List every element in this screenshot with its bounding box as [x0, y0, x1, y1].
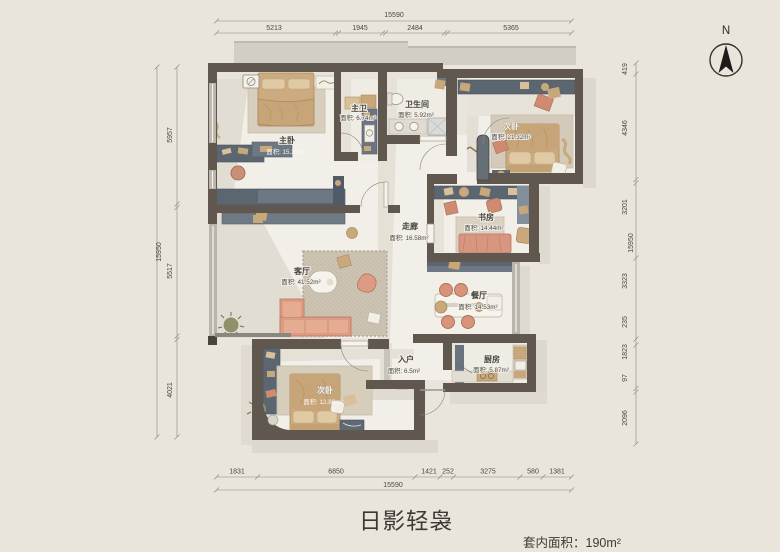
svg-text:15590: 15590	[384, 12, 404, 19]
svg-text:1945: 1945	[352, 25, 368, 32]
svg-text:面积: 16.58m²: 面积: 16.58m²	[389, 233, 428, 242]
svg-text:5517: 5517	[167, 263, 174, 279]
svg-text:4346: 4346	[622, 120, 629, 136]
svg-text:15950: 15950	[156, 242, 163, 262]
svg-text:580: 580	[527, 469, 539, 476]
svg-text:5213: 5213	[266, 25, 282, 32]
svg-text:4021: 4021	[167, 382, 174, 398]
svg-text:卫生间: 卫生间	[405, 99, 429, 109]
svg-text:面积: 5.92m²: 面积: 5.92m²	[398, 110, 434, 119]
svg-text:2484: 2484	[407, 25, 423, 32]
svg-text:面积: 6.5m²: 面积: 6.5m²	[388, 366, 420, 375]
svg-text:主卫: 主卫	[351, 103, 367, 113]
svg-text:日影轻袅: 日影轻袅	[359, 509, 453, 534]
svg-text:面积: 15.29m²: 面积: 15.29m²	[266, 147, 305, 156]
svg-text:书房: 书房	[478, 212, 494, 222]
svg-text:次卧: 次卧	[503, 121, 519, 131]
svg-text:N: N	[722, 25, 730, 37]
svg-text:面积: 12.89m²: 面积: 12.89m²	[303, 397, 342, 406]
svg-text:面积: 6.74m²: 面积: 6.74m²	[340, 113, 376, 122]
svg-text:6850: 6850	[328, 469, 344, 476]
svg-text:3275: 3275	[480, 469, 496, 476]
svg-text:面积: 5.87m²: 面积: 5.87m²	[473, 365, 509, 374]
svg-text:97: 97	[622, 374, 629, 382]
svg-text:252: 252	[442, 469, 454, 476]
svg-text:3201: 3201	[622, 199, 629, 215]
svg-text:5957: 5957	[167, 127, 174, 143]
svg-text:面积: 14.53m²: 面积: 14.53m²	[458, 302, 497, 311]
svg-text:次卧: 次卧	[317, 385, 333, 395]
svg-text:235: 235	[622, 316, 629, 328]
svg-text:1831: 1831	[229, 469, 245, 476]
svg-text:3323: 3323	[622, 273, 629, 289]
svg-text:套内面积：190m²: 套内面积：190m²	[523, 535, 621, 550]
svg-text:客厅: 客厅	[293, 266, 310, 276]
svg-text:面积: 41.52m²: 面积: 41.52m²	[281, 277, 320, 286]
svg-text:面积: 14.44m²: 面积: 14.44m²	[464, 223, 503, 232]
svg-text:1381: 1381	[549, 469, 565, 476]
svg-text:入户: 入户	[397, 354, 414, 364]
svg-text:15590: 15590	[383, 482, 403, 489]
svg-text:1421: 1421	[421, 469, 437, 476]
svg-text:面积: 21.32m²: 面积: 21.32m²	[491, 132, 530, 141]
svg-text:419: 419	[622, 63, 629, 75]
svg-text:餐厅: 餐厅	[470, 290, 487, 300]
svg-text:5365: 5365	[503, 25, 519, 32]
svg-text:厨房: 厨房	[484, 354, 500, 364]
svg-text:2096: 2096	[622, 410, 629, 426]
svg-text:1823: 1823	[622, 344, 629, 360]
svg-text:主卧: 主卧	[279, 135, 295, 145]
svg-text:15950: 15950	[628, 233, 635, 253]
svg-text:走廊: 走廊	[401, 221, 418, 231]
